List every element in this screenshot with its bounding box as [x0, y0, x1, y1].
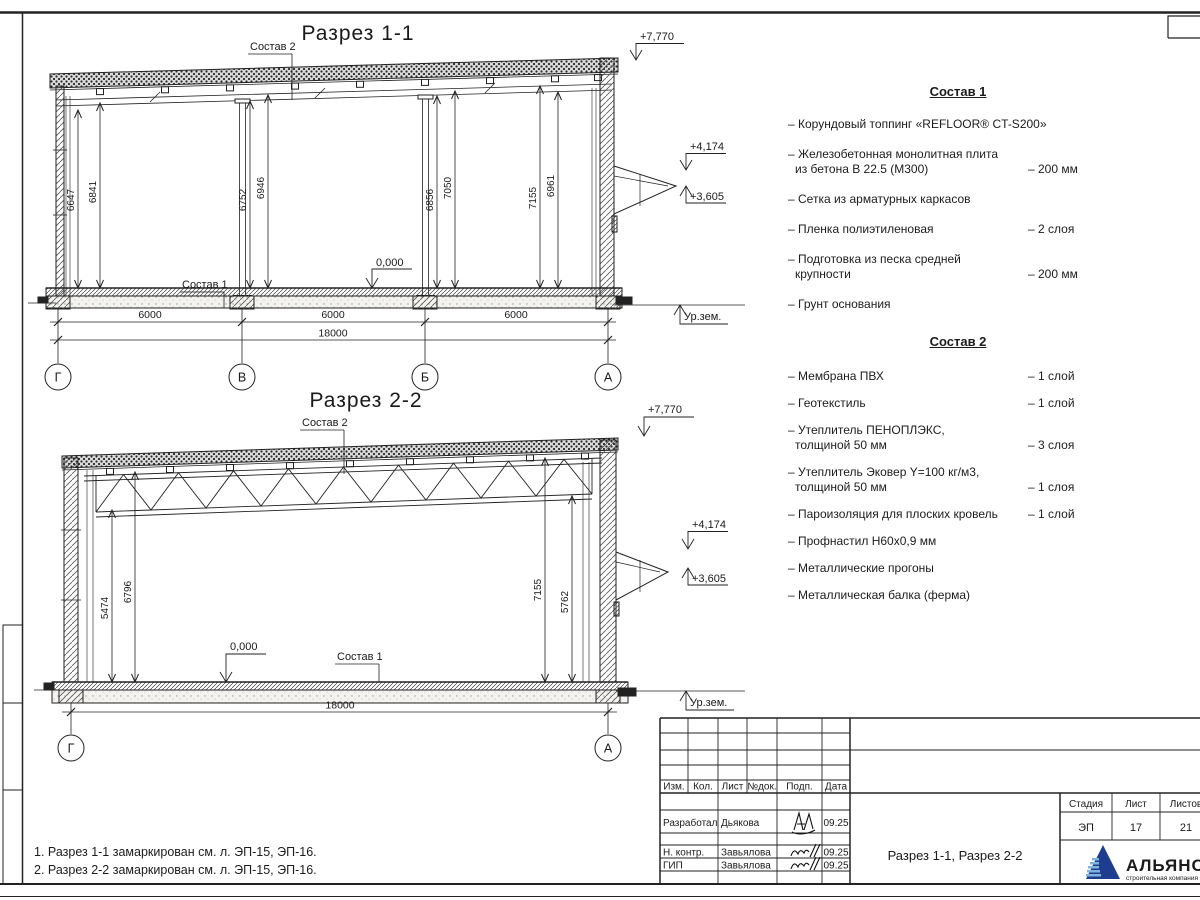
- item-value: – 1 слой: [1028, 507, 1128, 522]
- item-text: – Металлические прогоны: [788, 561, 934, 576]
- canopy-truss: [614, 552, 668, 616]
- axis-label: Г: [68, 742, 75, 756]
- sostav2-list: Состав 2 – Мембрана ПВХ– 1 слой – Геотек…: [788, 334, 1128, 615]
- dim-label: 5762: [560, 590, 571, 613]
- role-cell: Н. контр.: [663, 848, 704, 859]
- dim-label: 6000: [504, 309, 528, 321]
- dim-label: 18000: [318, 328, 347, 340]
- sostav2-label: Состав 2: [250, 41, 296, 53]
- dim-label: 7155: [533, 578, 544, 601]
- drawing-sheet: Разрез 1-1: [0, 0, 1200, 900]
- sheet-notes: 1. Разрез 1-1 замаркирован см. л. ЭП-15,…: [34, 843, 317, 879]
- sostav1-list: Состав 1 – Корундовый топпинг «REFLOOR® …: [788, 84, 1128, 327]
- item-text: толщиной 50 мм: [788, 480, 887, 495]
- wall-right: [583, 440, 616, 682]
- item-text: – Пароизоляция для плоских кровель: [788, 507, 998, 522]
- item-text: – Подготовка из песка средней: [788, 252, 961, 267]
- axis-label: А: [604, 742, 613, 756]
- name-cell: Дьякова: [721, 818, 760, 829]
- elevation-mark-canopy-bottom: +3,605: [680, 186, 726, 203]
- svg-text:+7,770: +7,770: [648, 404, 682, 416]
- list-item: – Подготовка из песка средней крупности–…: [788, 252, 1128, 282]
- elevation-mark-roof: +7,770: [630, 31, 684, 60]
- list-item: – Профнастил Н60х0,9 мм: [788, 534, 1128, 549]
- sostav2-leader: Состав 2: [300, 417, 348, 474]
- svg-text:+3,605: +3,605: [690, 191, 724, 203]
- section-2-2: Разрез 2-2: [34, 389, 745, 761]
- stage-value: ЭП: [1078, 822, 1094, 834]
- axis-label: А: [604, 371, 613, 385]
- dim-label: 6000: [138, 309, 162, 321]
- role-cell: ГИП: [663, 861, 683, 872]
- vertical-dimensions: 6647 6841 6752 6946 6856 7050 7155 6961: [66, 86, 558, 288]
- axis-label: В: [238, 371, 246, 385]
- dim-label: 18000: [325, 700, 354, 712]
- dim-label: 6946: [256, 176, 267, 199]
- dim-label: 6000: [321, 309, 345, 321]
- item-value: – 200 мм: [1028, 162, 1128, 177]
- dim-label: 7050: [443, 176, 454, 199]
- vertical-dimensions: 5474 6796 7155 5762: [100, 458, 572, 682]
- elevation-mark-zero: 0,000: [366, 257, 412, 288]
- side-stamp: [3, 625, 23, 884]
- elevation-mark-canopy-bottom: +3,605: [682, 568, 728, 585]
- col-header: Дата: [825, 782, 848, 793]
- list-item: – Железобетонная монолитная плита из бет…: [788, 147, 1128, 177]
- item-value: – 200 мм: [1028, 267, 1128, 282]
- date-cell: 09.25: [823, 848, 848, 859]
- elevation-mark-canopy-top: +4,174: [680, 141, 726, 170]
- date-cell: 09.25: [823, 818, 848, 829]
- floor-slab: [28, 288, 745, 309]
- axis-markers: Г А: [58, 735, 621, 761]
- col-header: Кол.: [693, 782, 713, 793]
- dim-label: 6752: [238, 188, 249, 211]
- logo-name: АЛЬЯНС: [1126, 856, 1200, 875]
- list-item: – Утеплитель ПЕНОПЛЭКС, толщиной 50 мм– …: [788, 423, 1128, 453]
- item-value: – 3 слоя: [1028, 438, 1128, 453]
- svg-text:+3,605: +3,605: [692, 573, 726, 585]
- doc-title: Разрез 1-1, Разрез 2-2: [888, 848, 1023, 863]
- dim-label: 6647: [66, 188, 77, 211]
- elevation-mark-zero: 0,000: [220, 641, 266, 682]
- sheets-label: Листов: [1170, 799, 1200, 810]
- item-text: – Сетка из арматурных каркасов: [788, 192, 971, 207]
- signatures: [791, 813, 820, 870]
- item-text: – Железобетонная монолитная плита: [788, 147, 998, 162]
- date-cell: 09.25: [823, 861, 848, 872]
- item-text: из бетона В 22.5 (М300): [788, 162, 928, 177]
- dim-label: 6856: [425, 188, 436, 211]
- list-item: – Сетка из арматурных каркасов: [788, 192, 1128, 207]
- item-text: – Профнастил Н60х0,9 мм: [788, 534, 936, 549]
- item-text: – Утеплитель Эковер Y=100 кг/м3,: [788, 465, 979, 480]
- roof-slab: [50, 58, 618, 106]
- item-text: – Грунт основания: [788, 297, 891, 312]
- item-text: – Мембрана ПВХ: [788, 369, 884, 384]
- elevation-mark-roof: +7,770: [638, 404, 694, 436]
- roof-slab: [62, 438, 618, 474]
- dim-label: 6796: [123, 580, 134, 603]
- sheets-value: 21: [1180, 822, 1192, 834]
- item-value: – 2 слоя: [1028, 222, 1128, 237]
- section2-title: Разрез 2-2: [309, 389, 422, 412]
- item-value: – 1 слоя: [1028, 480, 1128, 495]
- sostav1-label: Состав 1: [182, 279, 228, 291]
- item-text: – Пленка полиэтиленовая: [788, 222, 934, 237]
- list-item: – Утеплитель Эковер Y=100 кг/м3, толщино…: [788, 465, 1128, 495]
- logo-subtitle: строительная компания: [1126, 875, 1198, 882]
- col-header: Лист: [722, 782, 744, 793]
- axis-label: Г: [55, 371, 62, 385]
- stage-label: Стадия: [1069, 799, 1103, 810]
- corner-stamp: [1168, 16, 1200, 38]
- col-header: №док.: [747, 782, 776, 793]
- svg-text:0,000: 0,000: [230, 641, 258, 653]
- list-item: – Пленка полиэтиленовая– 2 слоя: [788, 222, 1128, 237]
- horizontal-dimensions: 6000 6000 6000 18000: [50, 308, 616, 363]
- dim-label: 6841: [88, 180, 99, 203]
- list-item: – Металлическая балка (ферма): [788, 588, 1128, 603]
- col-header: Подп.: [786, 782, 813, 793]
- note-line: 2. Разрез 2-2 замаркирован см. л. ЭП-15,…: [34, 861, 317, 879]
- axis-label: Б: [421, 371, 429, 385]
- svg-text:0,000: 0,000: [376, 257, 404, 269]
- col-header: Изм.: [663, 782, 684, 793]
- horizontal-dimensions: 18000: [62, 700, 617, 735]
- role-cell: Разработал: [663, 817, 718, 829]
- svg-text:+7,770: +7,770: [640, 31, 674, 43]
- item-text: – Геотекстиль: [788, 396, 866, 411]
- list-item: – Грунт основания: [788, 297, 1128, 312]
- sheet-value: 17: [1130, 822, 1142, 834]
- list-item: – Геотекстиль– 1 слой: [788, 396, 1128, 411]
- ground-level-mark: Ур.зем.: [674, 305, 728, 324]
- sostav1-title: Состав 1: [788, 84, 1128, 99]
- sostav1-label: Состав 1: [337, 651, 383, 663]
- sostav2-label: Состав 2: [302, 417, 348, 429]
- elevation-mark-canopy-top: +4,174: [682, 519, 728, 549]
- sostav2-title: Состав 2: [788, 334, 1128, 349]
- item-text: – Металлическая балка (ферма): [788, 588, 970, 603]
- section-1-1: Разрез 1-1: [28, 22, 745, 390]
- dim-label: 6961: [546, 174, 557, 197]
- ground-level-mark: Ур.зем.: [680, 691, 734, 710]
- svg-text:Ур.зем.: Ур.зем.: [684, 311, 721, 323]
- svg-text:Ур.зем.: Ур.зем.: [690, 697, 727, 709]
- svg-text:+4,174: +4,174: [690, 141, 724, 153]
- title-block-text: Изм. Кол. Лист №док. Подп. Дата Разработ…: [663, 782, 1200, 872]
- item-value: – 1 слой: [1028, 369, 1128, 384]
- title-block: Изм. Кол. Лист №док. Подп. Дата Разработ…: [660, 718, 1200, 884]
- item-value: – 1 слой: [1028, 396, 1128, 411]
- item-text: крупности: [788, 267, 851, 282]
- note-line: 1. Разрез 1-1 замаркирован см. л. ЭП-15,…: [34, 843, 317, 861]
- sostav1-leader: Состав 1: [335, 651, 383, 682]
- list-item: – Металлические прогоны: [788, 561, 1128, 576]
- floor-slab: [34, 682, 745, 703]
- section1-title: Разрез 1-1: [301, 22, 414, 45]
- name-cell: Завьялова: [721, 861, 771, 872]
- wall-right: [592, 58, 614, 296]
- wall-left: [61, 458, 93, 682]
- item-text: – Корундовый топпинг «REFLOOR® CT-S200»: [788, 117, 1047, 132]
- name-cell: Завьялова: [721, 848, 771, 859]
- svg-text:+4,174: +4,174: [692, 519, 726, 531]
- list-item: – Пароизоляция для плоских кровель– 1 сл…: [788, 507, 1128, 522]
- dim-label: 5474: [100, 596, 111, 619]
- axis-markers: Г В Б А: [45, 364, 621, 390]
- list-item: – Корундовый топпинг «REFLOOR® CT-S200»: [788, 117, 1128, 132]
- sheet-label: Лист: [1125, 799, 1147, 810]
- canopy-truss: [612, 166, 676, 232]
- company-logo: АЛЬЯНС строительная компания: [1086, 845, 1200, 882]
- item-text: толщиной 50 мм: [788, 438, 887, 453]
- dim-label: 7155: [528, 186, 539, 209]
- item-text: – Утеплитель ПЕНОПЛЭКС,: [788, 423, 945, 438]
- list-item: – Мембрана ПВХ– 1 слой: [788, 369, 1128, 384]
